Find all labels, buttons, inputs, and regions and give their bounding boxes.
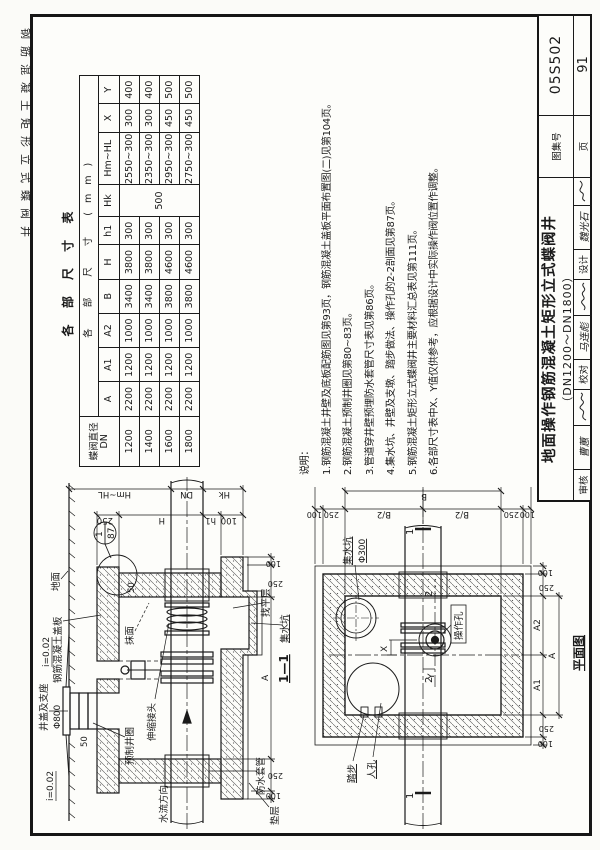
- ground-label: 地面: [50, 572, 62, 591]
- signature-scribble: [576, 180, 590, 204]
- cell: 4600: [180, 245, 200, 279]
- dim-50: 50: [80, 736, 90, 747]
- plan-caption: 平面图: [572, 635, 586, 671]
- col-header: H: [99, 245, 120, 279]
- page-no: 91: [573, 14, 592, 116]
- cell: 1000: [180, 313, 200, 347]
- notes-heading: 说明：: [295, 55, 317, 475]
- dim-A2: A2: [533, 619, 543, 631]
- cell: 1200: [180, 348, 200, 382]
- slope-label-left: i=0.02: [46, 771, 56, 801]
- cell: 400: [140, 76, 160, 104]
- cell: 450: [160, 104, 180, 132]
- cell: 3800: [140, 245, 160, 279]
- dimension-table: 蝶阀直径 DN 各 部 尺 寸 (mm) A A1 A2 B H h1 Hk H…: [79, 75, 200, 467]
- note-item: 6.各部尺寸表中X、Y值仅供参考，应根据设计中实际操作阀位置作调整。: [424, 55, 446, 475]
- dim-250: 250: [268, 771, 283, 780]
- cell: 4600: [160, 245, 180, 279]
- dim-250: 250: [539, 583, 554, 592]
- dim-Y: Y: [427, 673, 437, 680]
- cell: 500: [180, 76, 200, 104]
- note-item: 1.钢筋混凝土井壁及底板配筋图见第93页，钢筋混凝土盖板平面布置图(二)见第10…: [317, 55, 339, 475]
- scanned-drawing-page: 钢筋混凝土矩形立式蝶阀井 各 部 尺 寸 表 蝶阀直径 DN 各 部 尺 寸 (…: [0, 0, 600, 850]
- flow-direction-label: 水流方向: [158, 785, 170, 823]
- col-header: Y: [99, 76, 120, 104]
- cell: 2200: [180, 382, 200, 416]
- col-header: A2: [99, 313, 120, 347]
- col-header: X: [99, 104, 120, 132]
- dim-100: 100: [266, 559, 281, 568]
- cell: 3800: [160, 279, 180, 313]
- cell-dn: 1800: [180, 416, 200, 466]
- table-title: 各 部 尺 寸 表: [59, 75, 76, 467]
- cell: 300: [120, 104, 140, 132]
- designer-signature: [573, 178, 592, 206]
- cushion-layer-left: [243, 655, 248, 799]
- cell: 2200: [120, 382, 140, 416]
- cell: 2200: [140, 382, 160, 416]
- table-row: 1400 2200 1200 1000 3400 3800 300 2350~3…: [140, 76, 160, 467]
- cell: 300: [180, 217, 200, 245]
- dim-A1: A1: [533, 679, 543, 691]
- cell: 2350~3000: [140, 132, 160, 184]
- drawing-title: 地面操作钢筋混凝土矩形立式蝶阀井: [538, 215, 559, 463]
- dim-A: A: [548, 652, 558, 659]
- cell: 3400: [140, 279, 160, 313]
- col-header: B: [99, 279, 120, 313]
- manhole-label: 人孔: [367, 760, 378, 780]
- checker-name: 马连彪: [573, 316, 592, 360]
- section-view-drawing: 井盖及支座 Φ800 i=0.02 i=0.02 钢筋混凝土盖板 地面 1 87…: [35, 473, 291, 829]
- dim-X: X: [380, 646, 390, 652]
- designer-name: 魏光石: [573, 206, 592, 250]
- butterfly-valve-shape: [119, 652, 213, 683]
- reviewer-label: 审核: [573, 470, 592, 500]
- plan-view-drawing: 1 1 2 2 踏步 人孔 集水坑 Φ300 操作孔 X Y 100 250 B…: [291, 479, 591, 829]
- dim-250: 250: [504, 510, 519, 519]
- col-header: h1: [99, 217, 120, 245]
- manhole-cover-label: 井盖及支座: [38, 683, 50, 731]
- cell-dn: 1600: [160, 416, 180, 466]
- cell: 2750~3000: [180, 132, 200, 184]
- dim-Hk: Hk: [219, 489, 230, 499]
- cut-1-label: 1: [405, 529, 416, 535]
- group-header: 各 部 尺 寸 (mm): [80, 76, 99, 417]
- sump-dia-label: Φ300: [358, 538, 368, 563]
- dim-B: B: [421, 491, 427, 501]
- cell: 1000: [140, 313, 160, 347]
- detail-no: 1: [95, 531, 105, 537]
- dim-A: A: [261, 674, 271, 681]
- flow-arrow: [183, 711, 191, 723]
- cushion-layer-right: [243, 557, 248, 591]
- page-label: 页: [573, 116, 592, 178]
- dim-B2: B/2: [455, 509, 469, 519]
- cell: 2950~3000: [160, 132, 180, 184]
- dim-HmHL: Hm~HL: [98, 489, 131, 499]
- dim-100: 100: [266, 791, 281, 800]
- reviewer-signature: [573, 390, 592, 426]
- cell-hk-merged: 500: [120, 184, 200, 216]
- cell: 3800: [120, 245, 140, 279]
- section-caption: 1—1: [277, 654, 291, 683]
- cell: 450: [180, 104, 200, 132]
- cell: 1200: [120, 348, 140, 382]
- dim-50: 50: [127, 582, 137, 593]
- table-row: 1800 2200 1200 1000 3800 4600 300 2750~3…: [180, 76, 200, 467]
- note-item: 4.集水坑、井壁及支墩、踏步做法、操作孔的2-2剖面见第87页。: [381, 55, 403, 475]
- dim-250: 250: [539, 724, 554, 733]
- dim-100: 100: [538, 739, 553, 748]
- cell: 300: [160, 217, 180, 245]
- dim-100: 100: [221, 515, 237, 525]
- dim-DN: DN: [180, 489, 193, 499]
- cell: 3400: [120, 279, 140, 313]
- col-header: Hm~HL: [99, 132, 120, 184]
- valve-shape: [401, 623, 451, 656]
- table-corner-header: 蝶阀直径 DN: [80, 416, 120, 466]
- reviewer-name: 曹蕙: [573, 426, 592, 470]
- sump-label: 集水坑: [279, 614, 291, 643]
- cell: 300: [120, 217, 140, 245]
- cell: 1000: [120, 313, 140, 347]
- cover-slab-label: 钢筋混凝土盖板: [52, 616, 64, 683]
- dim-h1: h1: [205, 515, 216, 525]
- checker-label: 校对: [573, 360, 592, 390]
- cell: 2200: [160, 382, 180, 416]
- manhole-dia-label: Φ800: [53, 704, 63, 729]
- note-item: 5.钢筋混凝土矩形立式蝶阀井主要材料汇总表见第111页。: [403, 55, 425, 475]
- signature-scribble: [576, 393, 590, 423]
- designer-label: 设计: [573, 250, 592, 280]
- cell: 400: [120, 76, 140, 104]
- dim-250: 250: [324, 510, 339, 519]
- cell: 3800: [180, 279, 200, 313]
- row-header-dn: DN: [99, 434, 110, 448]
- cell-dn: 1400: [140, 416, 160, 466]
- table-row: 1600 2200 1200 1000 3800 4600 300 2950~3…: [160, 76, 180, 467]
- manhole-circle: [347, 663, 399, 715]
- dim-250: 250: [268, 579, 283, 588]
- cell: 300: [140, 217, 160, 245]
- col-header: A: [99, 382, 120, 416]
- dim-100: 100: [520, 510, 535, 519]
- notes-block: 说明： 1.钢筋混凝土井壁及底板配筋图见第93页，钢筋混凝土盖板平面布置图(二)…: [295, 55, 446, 475]
- sleeve-label: 防水套管: [255, 757, 267, 795]
- base-slab-shape: [221, 557, 257, 799]
- signature-scribble: [576, 283, 590, 313]
- drawing-sheet: 各 部 尺 寸 表 蝶阀直径 DN 各 部 尺 寸 (mm) A A1 A2 B: [30, 14, 592, 836]
- cell: 1200: [140, 348, 160, 382]
- cell: 1200: [160, 348, 180, 382]
- dim-100: 100: [538, 568, 553, 577]
- steps-label: 踏步: [346, 764, 358, 783]
- dim-B2: B/2: [377, 509, 391, 519]
- atlas-no-label: 图集号: [539, 116, 573, 178]
- cover-slab-right: [97, 567, 119, 661]
- drawing-title-cell: 地面操作钢筋混凝土矩形立式蝶阀井 （DN1200～DN1800）: [539, 178, 573, 500]
- detail-page: 87: [107, 528, 117, 539]
- cell-dn: 1200: [120, 416, 140, 466]
- leveling-label: 找平层: [260, 588, 272, 617]
- cut-1-label: 1: [405, 793, 416, 799]
- note-item: 2.钢筋混凝土预制井圈见第80~83页。: [338, 55, 360, 475]
- atlas-no-value: 05S502: [539, 14, 573, 116]
- sump-label: 集水坑: [342, 536, 354, 565]
- dim-250: 250: [97, 515, 113, 525]
- cushion-label: 垫层: [269, 806, 281, 825]
- cut-2-label: 2: [424, 591, 435, 597]
- cell: 300: [140, 104, 160, 132]
- title-block: 地面操作钢筋混凝土矩形立式蝶阀井 （DN1200～DN1800） 图集号 05S…: [537, 14, 592, 502]
- col-header: Hk: [99, 184, 120, 216]
- precast-ring-label: 预制井圈: [124, 727, 136, 765]
- col-header: A1: [99, 348, 120, 382]
- slope-label-right: i=0.02: [42, 637, 52, 667]
- checker-signature: [573, 280, 592, 316]
- cell: 500: [160, 76, 180, 104]
- note-item: 3.管道穿井壁预埋防水套管尺寸表见第86页。: [360, 55, 382, 475]
- cell: 1000: [160, 313, 180, 347]
- cell: 2550~3000: [120, 132, 140, 184]
- dim-100: 100: [307, 510, 322, 519]
- operation-hole-label: 操作孔: [453, 611, 465, 640]
- cover-slab-left: [97, 729, 119, 793]
- dim-H: H: [159, 515, 165, 525]
- table-row: 1200 2200 1200 1000 3400 3800 300 500 25…: [120, 76, 140, 467]
- plaster-label: 抹面: [124, 626, 136, 645]
- expansion-joint-label: 伸缩接头: [146, 703, 158, 741]
